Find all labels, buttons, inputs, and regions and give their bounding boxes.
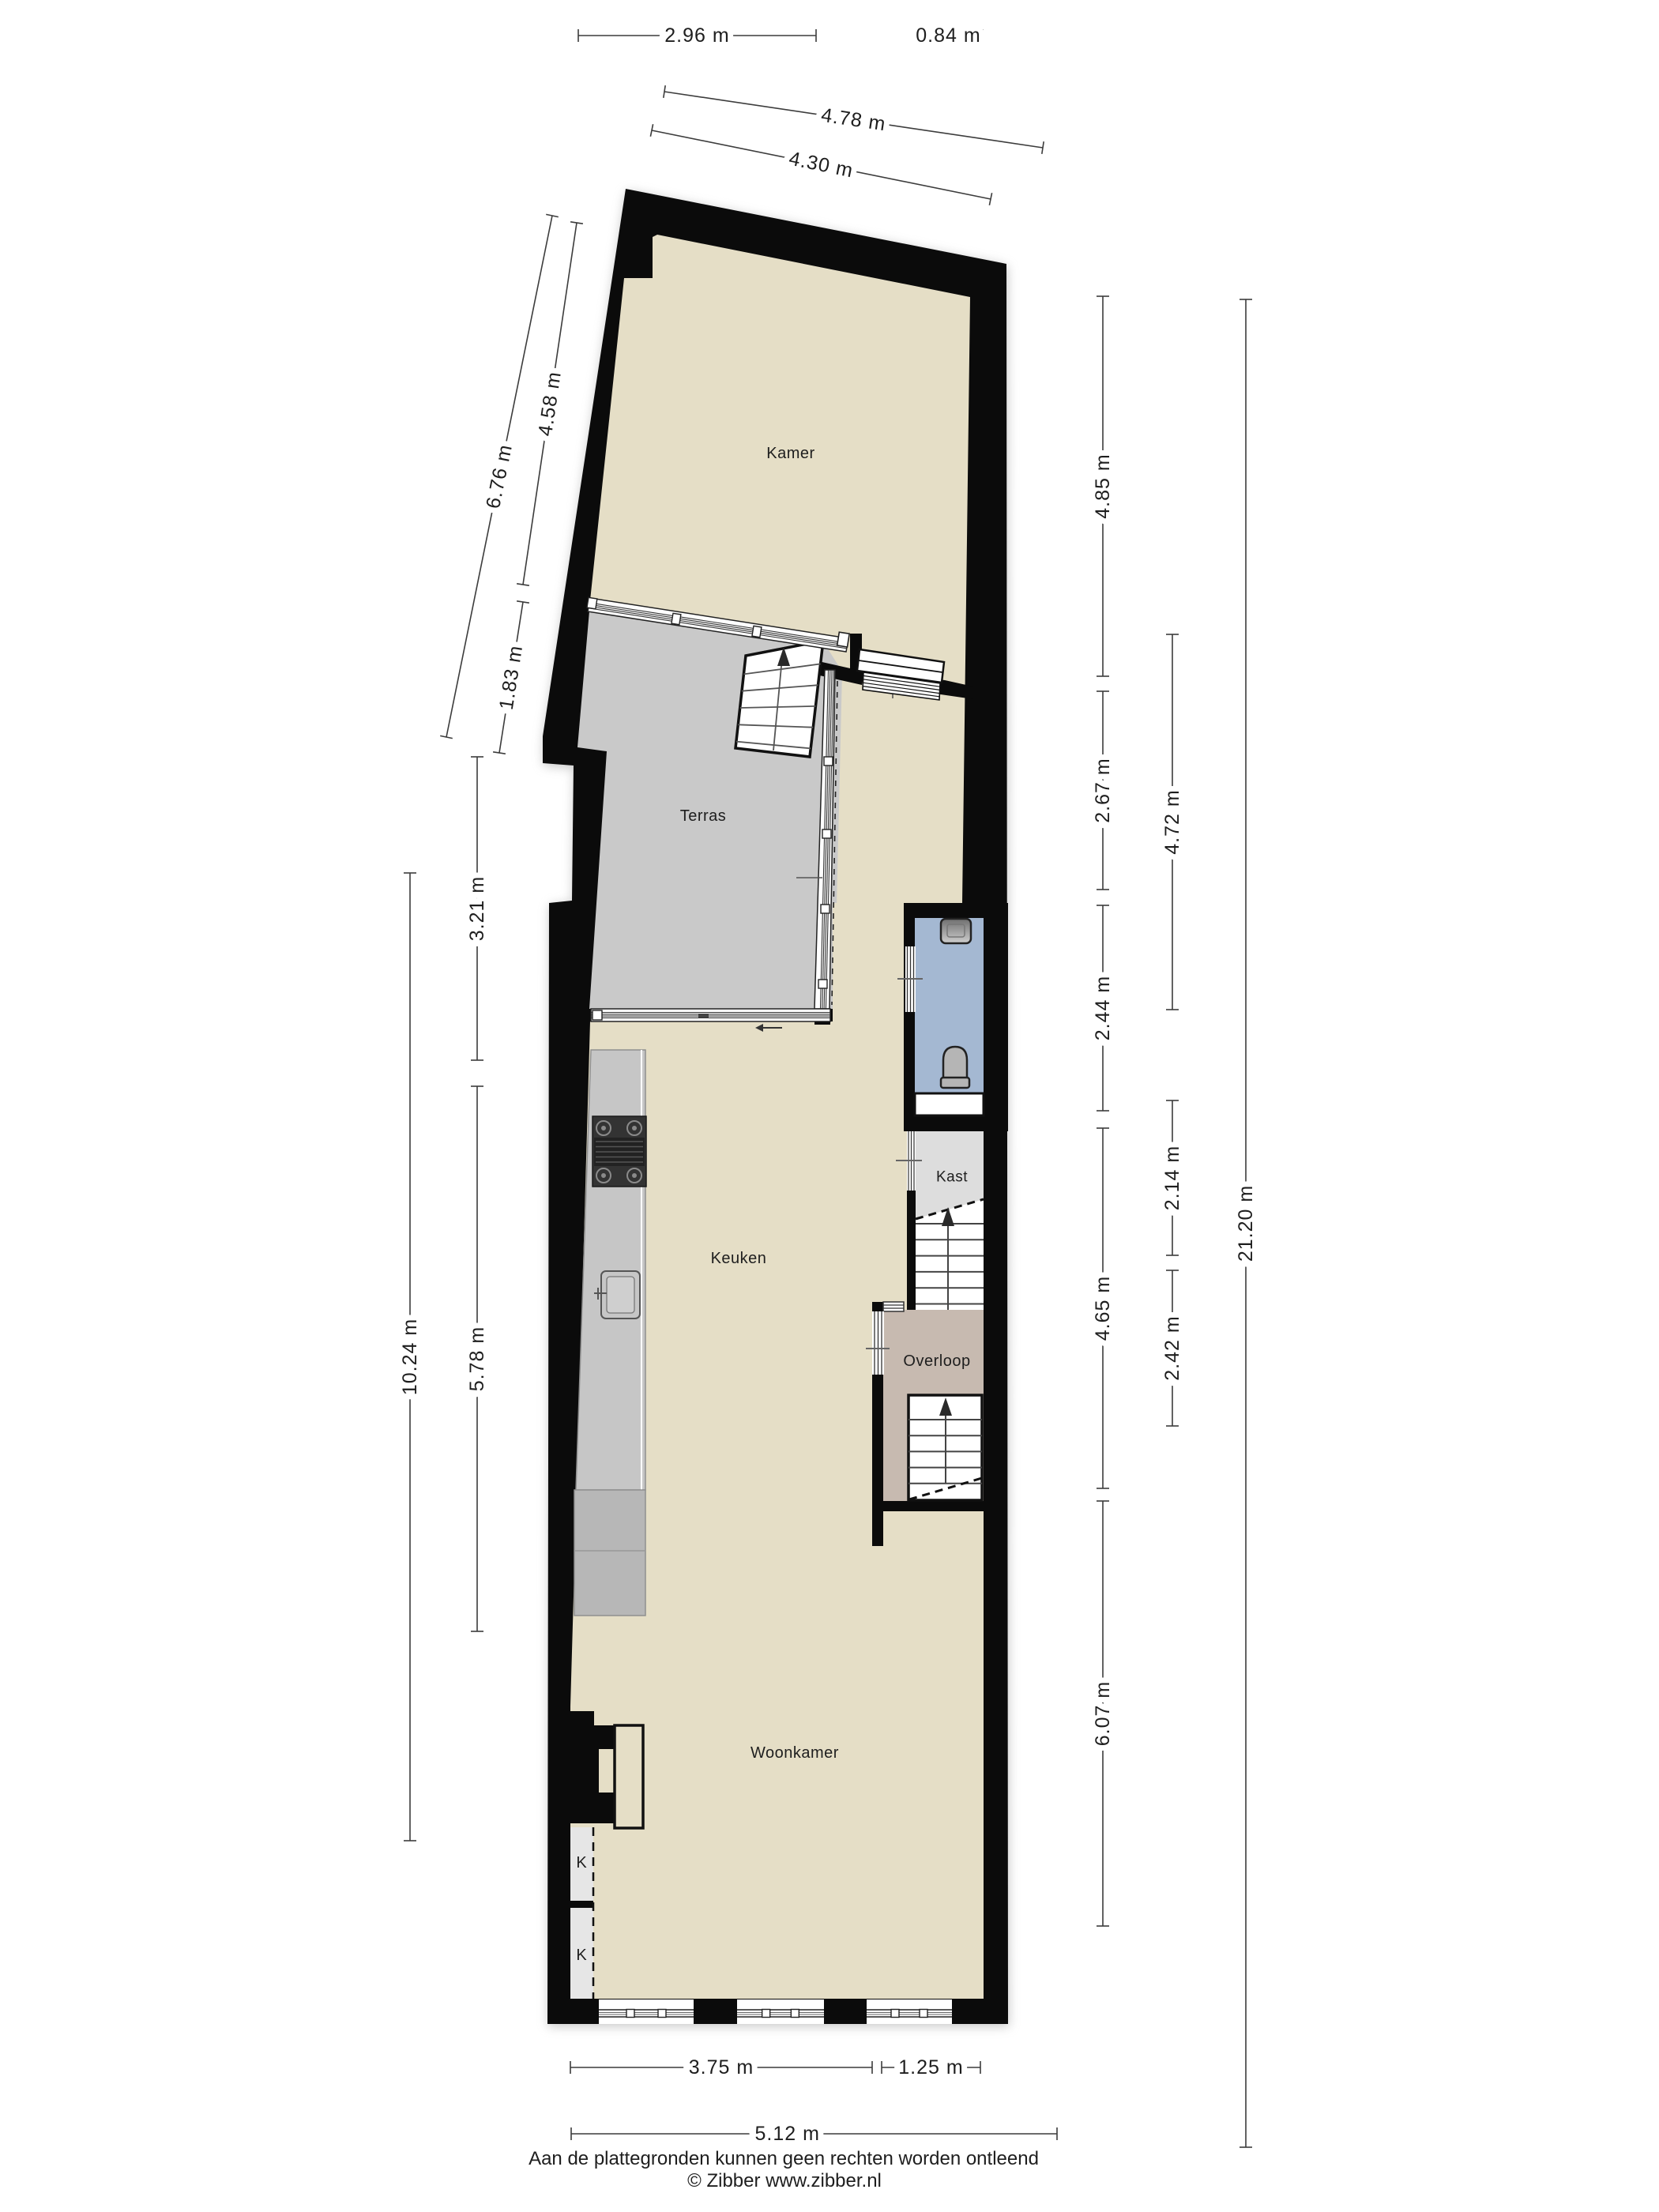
- svg-text:3.75 m: 3.75 m: [689, 2056, 754, 2078]
- svg-text:4.85 m: 4.85 m: [1092, 453, 1114, 518]
- svg-text:2.44 m: 2.44 m: [1092, 976, 1114, 1040]
- svg-text:Kast: Kast: [936, 1169, 968, 1186]
- svg-text:Kamer: Kamer: [766, 445, 814, 462]
- svg-text:4.65 m: 4.65 m: [1092, 1276, 1114, 1341]
- svg-text:Terras: Terras: [680, 807, 727, 825]
- svg-text:K: K: [576, 1947, 587, 1964]
- svg-text:0.84 m: 0.84 m: [916, 24, 980, 47]
- svg-text:© Zibber www.zibber.nl: © Zibber www.zibber.nl: [687, 2170, 882, 2191]
- svg-text:Overloop: Overloop: [903, 1352, 970, 1370]
- svg-text:6.07 m: 6.07 m: [1092, 1681, 1114, 1746]
- svg-text:2.42 m: 2.42 m: [1161, 1315, 1183, 1380]
- svg-text:5.78 m: 5.78 m: [466, 1326, 488, 1391]
- svg-text:Woonkamer: Woonkamer: [750, 1744, 839, 1762]
- svg-text:1.25 m: 1.25 m: [898, 2056, 963, 2078]
- svg-text:2.14 m: 2.14 m: [1161, 1145, 1183, 1210]
- svg-text:Keuken: Keuken: [711, 1250, 767, 1267]
- svg-text:10.24 m: 10.24 m: [399, 1319, 421, 1395]
- svg-text:3.21 m: 3.21 m: [466, 876, 488, 941]
- svg-text:21.20 m: 21.20 m: [1235, 1185, 1257, 1262]
- svg-text:K: K: [576, 1854, 587, 1872]
- svg-text:2.96 m: 2.96 m: [664, 24, 729, 47]
- svg-text:Aan de plattegronden kunnen ge: Aan de plattegronden kunnen geen rechten…: [529, 2148, 1039, 2169]
- svg-text:5.12 m: 5.12 m: [754, 2123, 819, 2145]
- svg-text:2.67 m: 2.67 m: [1092, 758, 1114, 822]
- svg-text:4.72 m: 4.72 m: [1161, 789, 1183, 854]
